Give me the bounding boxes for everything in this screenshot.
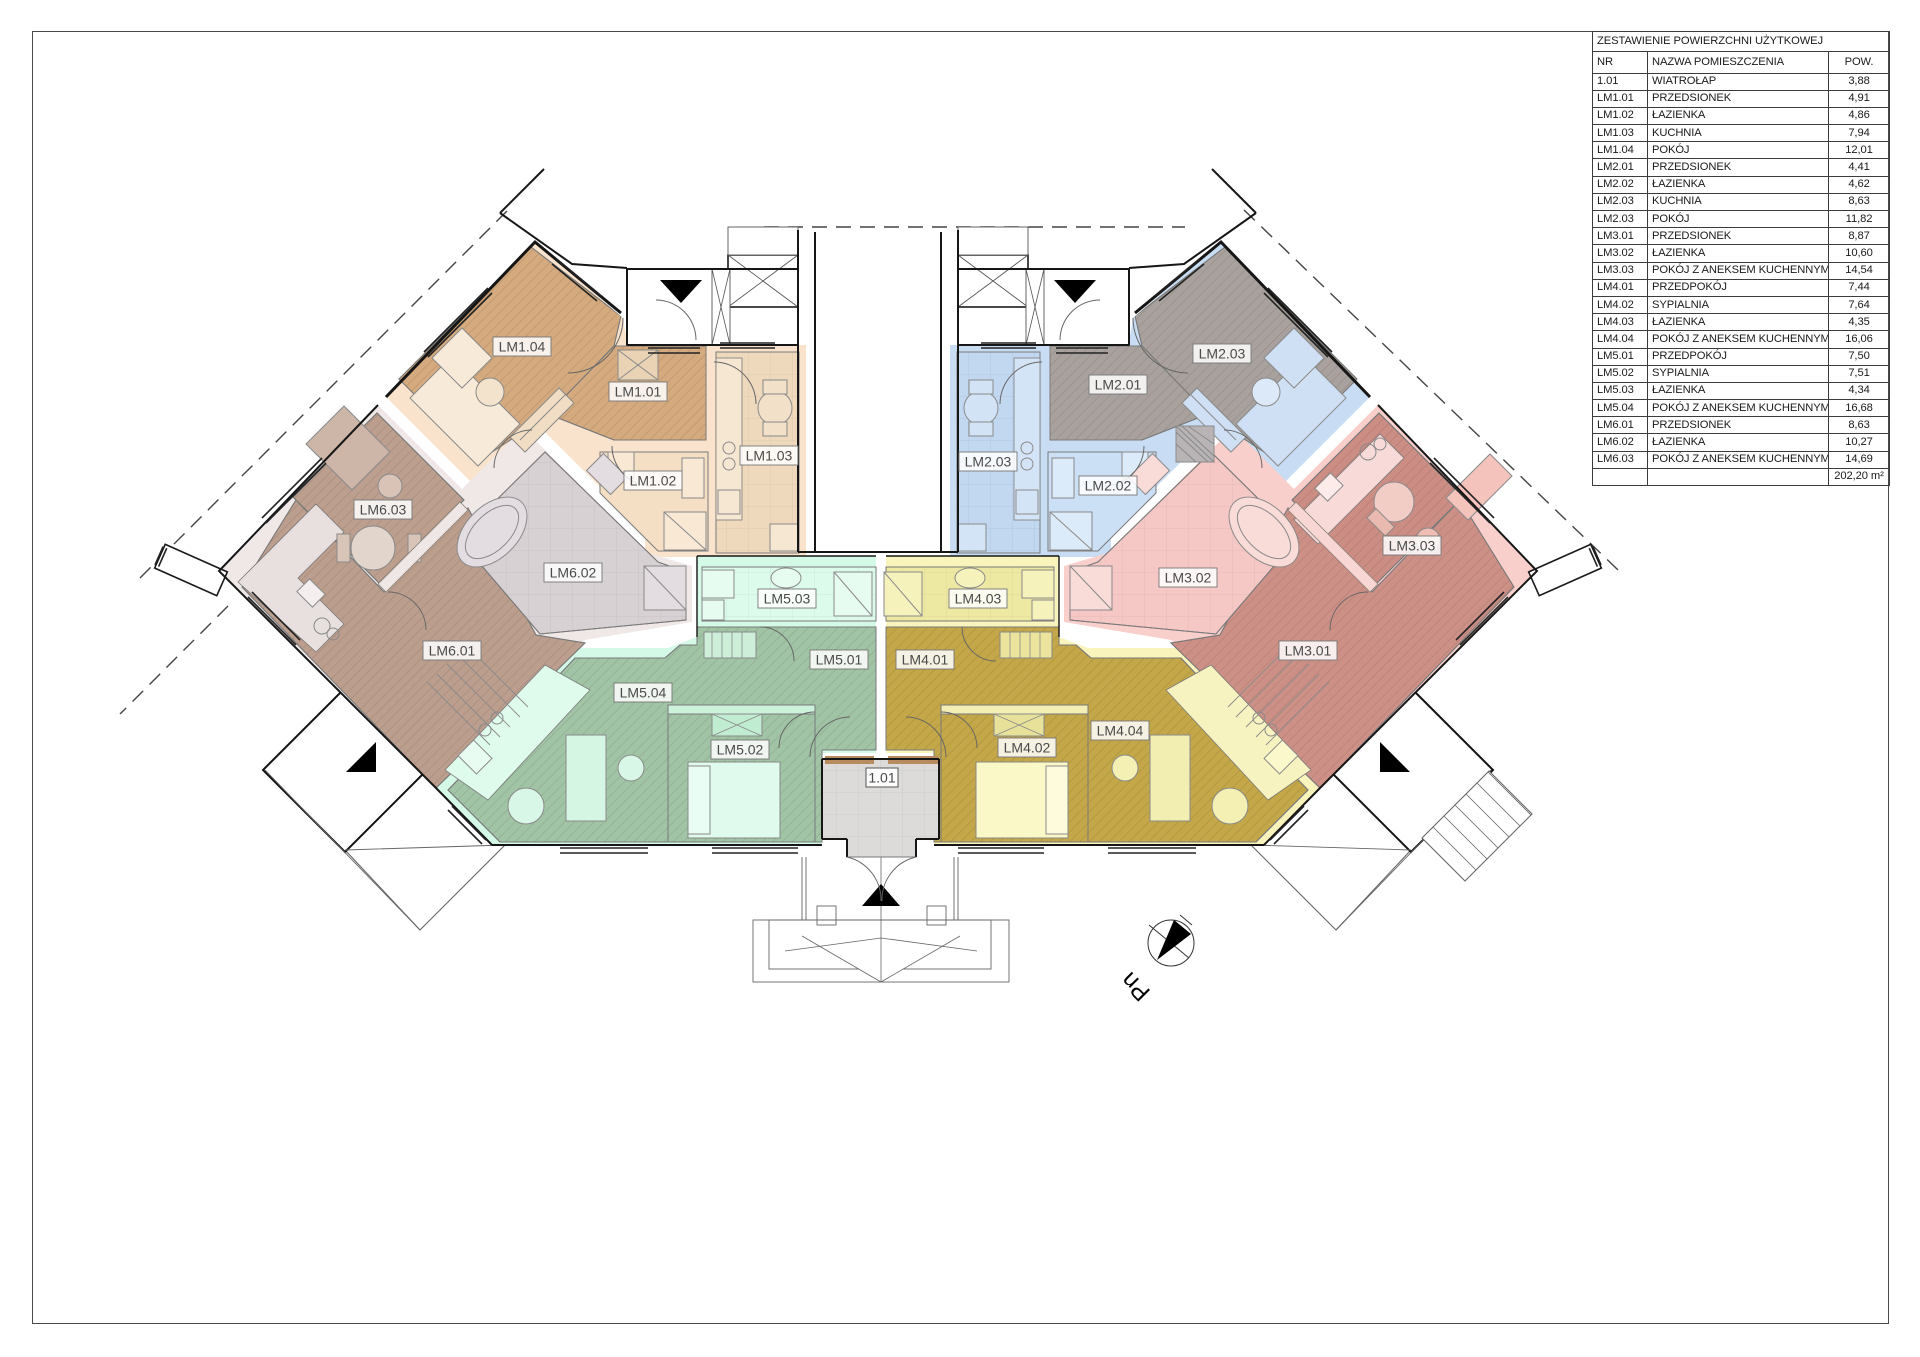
svg-text:LM3.03: LM3.03: [1389, 538, 1436, 554]
svg-text:Pn: Pn: [1116, 966, 1156, 1006]
svg-text:LM6.01: LM6.01: [429, 643, 476, 659]
svg-text:LM6.03: LM6.03: [360, 502, 407, 518]
svg-text:LM5.02: LM5.02: [717, 742, 764, 758]
svg-text:LM4.02: LM4.02: [1004, 740, 1051, 756]
svg-text:LM6.02: LM6.02: [550, 565, 597, 581]
svg-text:LM1.01: LM1.01: [615, 384, 662, 400]
svg-text:LM5.03: LM5.03: [764, 591, 811, 607]
svg-text:LM5.04: LM5.04: [620, 685, 667, 701]
svg-text:LM3.01: LM3.01: [1285, 643, 1332, 659]
svg-text:LM5.01: LM5.01: [816, 652, 863, 668]
svg-text:LM3.02: LM3.02: [1165, 570, 1212, 586]
svg-text:1.01: 1.01: [868, 770, 895, 786]
svg-text:LM2.02: LM2.02: [1085, 478, 1132, 494]
svg-text:LM4.04: LM4.04: [1097, 723, 1144, 739]
svg-text:LM2.03: LM2.03: [1199, 346, 1246, 362]
svg-text:LM1.02: LM1.02: [630, 473, 677, 489]
svg-text:LM4.01: LM4.01: [902, 652, 949, 668]
svg-text:LM4.03: LM4.03: [955, 591, 1002, 607]
svg-text:LM1.04: LM1.04: [499, 339, 546, 355]
svg-text:LM2.03: LM2.03: [965, 454, 1012, 470]
svg-text:LM1.03: LM1.03: [746, 448, 793, 464]
svg-text:LM2.01: LM2.01: [1095, 377, 1142, 393]
